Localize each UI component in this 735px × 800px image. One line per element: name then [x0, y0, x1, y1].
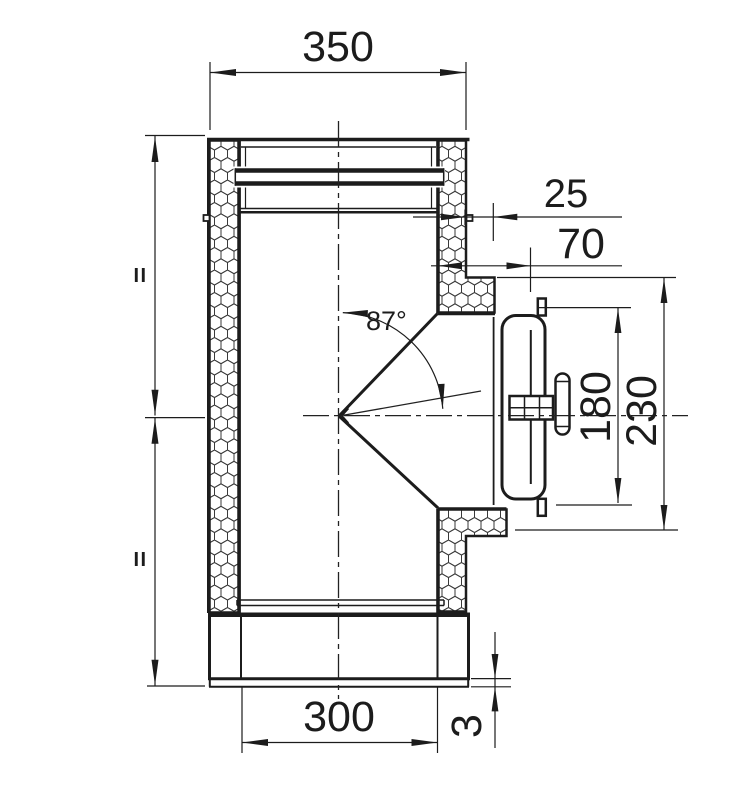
dim-70-label: 70: [557, 220, 605, 268]
technical-drawing-canvas: 350 II II 25 70: [0, 0, 735, 800]
handle-grip: [556, 374, 570, 435]
dim-180-label: 180: [572, 371, 620, 443]
dim-angle-label: 87°: [366, 306, 407, 336]
dim-equal-upper-label: II: [133, 265, 147, 287]
tee-drawing: 350 II II 25 70: [0, 0, 735, 800]
door-bottom-tab: [538, 499, 546, 516]
insulation-hatch-left: [210, 141, 239, 613]
dim-300-label: 300: [303, 693, 375, 741]
locking-band-top: [234, 167, 446, 188]
dim-3-label: 3: [443, 714, 491, 738]
dim-25-label: 25: [544, 172, 589, 216]
notch-left: [204, 215, 210, 221]
notch-right: [467, 215, 473, 221]
dim-350-label: 350: [302, 23, 374, 71]
dim-230-label: 230: [618, 375, 666, 447]
dim-equal-lower-label: II: [133, 549, 147, 571]
